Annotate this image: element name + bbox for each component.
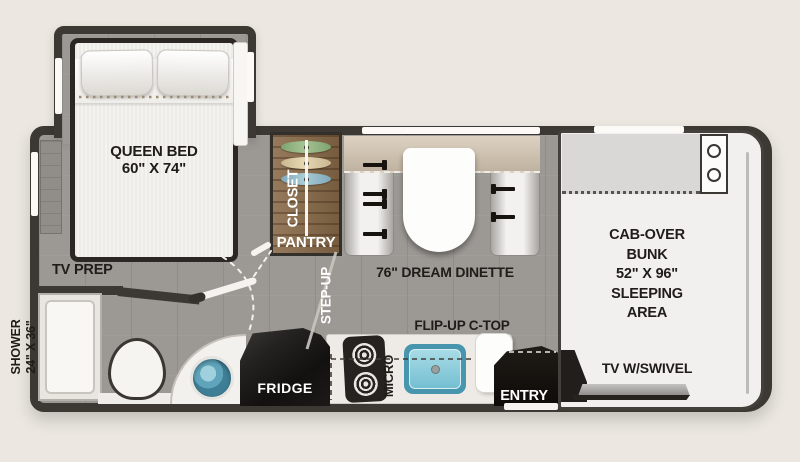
- rv-floorplan: QUEEN BED 60" X 74" TV PREP SHOWER 24" X…: [0, 0, 800, 462]
- bunk-label-line3: 52" X 96": [566, 265, 728, 285]
- seatbelt-marker: [493, 187, 515, 191]
- seatbelt-marker: [363, 163, 385, 167]
- burner: [353, 371, 378, 396]
- toilet: [108, 338, 166, 400]
- shower-stall: [38, 293, 102, 401]
- window-slideout-left: [55, 58, 62, 114]
- seatbelt-marker: [363, 232, 385, 236]
- sink-basin: [409, 349, 461, 389]
- windshield-line: [746, 152, 749, 394]
- tv-prep-cabinet: [40, 140, 62, 234]
- queen-bed: QUEEN BED 60" X 74": [70, 38, 238, 262]
- sink-drain: [431, 365, 440, 374]
- seatbelt-marker: [363, 202, 385, 206]
- step-up-label: STEP-UP: [319, 260, 334, 332]
- bed-size-label: QUEEN BED 60" X 74": [84, 143, 224, 178]
- bunk-label-line4: SLEEPING: [566, 285, 728, 305]
- cab-console-panel: [700, 134, 728, 194]
- pillow: [157, 49, 230, 96]
- window-body-left: [31, 152, 38, 216]
- kitchen-sink: [404, 344, 466, 394]
- bunk-label-line5: AREA: [566, 304, 728, 324]
- window-slideout-right: [247, 52, 254, 102]
- burner: [352, 342, 377, 367]
- seatbelt-marker: [493, 215, 515, 219]
- shower-pan: [45, 300, 95, 394]
- bunk-label-line1: CAB-OVER: [566, 226, 728, 246]
- bunk-label-line2: BUNK: [566, 246, 728, 266]
- bed-label-line2: 60" X 74": [84, 160, 224, 177]
- tv-swivel-label: TV W/SWIVEL: [566, 360, 728, 376]
- bed-label-line1: QUEEN BED: [84, 143, 224, 160]
- slideout-cabinet: [233, 42, 248, 146]
- fridge-label: FRIDGE: [240, 380, 330, 396]
- tv: [578, 384, 690, 396]
- microwave-label: MICRO: [382, 340, 396, 412]
- entry-label: ENTRY: [492, 388, 556, 405]
- fridge: FRIDGE: [240, 328, 330, 406]
- window-above-cab: [594, 126, 684, 133]
- tv-prep-label: TV PREP: [52, 262, 148, 279]
- shower-size-label: SHOWER 24" X 36": [8, 303, 40, 391]
- pillow: [81, 49, 154, 96]
- cab-dash-area: [562, 134, 700, 194]
- seatbelt-marker: [363, 192, 385, 196]
- flip-up-countertop-label: FLIP-UP C-TOP: [398, 318, 526, 334]
- cab-over-bunk-label: CAB-OVER BUNK 52" X 96" SLEEPING AREA: [566, 226, 728, 324]
- bathroom-sink: [190, 356, 234, 400]
- tv-base: [572, 395, 690, 400]
- pantry-label: PANTRY: [272, 234, 340, 251]
- console-knob: [707, 144, 721, 158]
- window-above-dinette: [362, 127, 540, 134]
- shower-label-line1: SHOWER: [9, 319, 24, 374]
- closet-rod: [305, 140, 308, 236]
- closet-label: CLOSET: [287, 162, 302, 236]
- dinette-label: 76" DREAM DINETTE: [352, 264, 538, 280]
- console-knob: [707, 168, 721, 182]
- dinette-table: [403, 148, 475, 252]
- shower-label-line2: 24" X 36": [24, 319, 39, 374]
